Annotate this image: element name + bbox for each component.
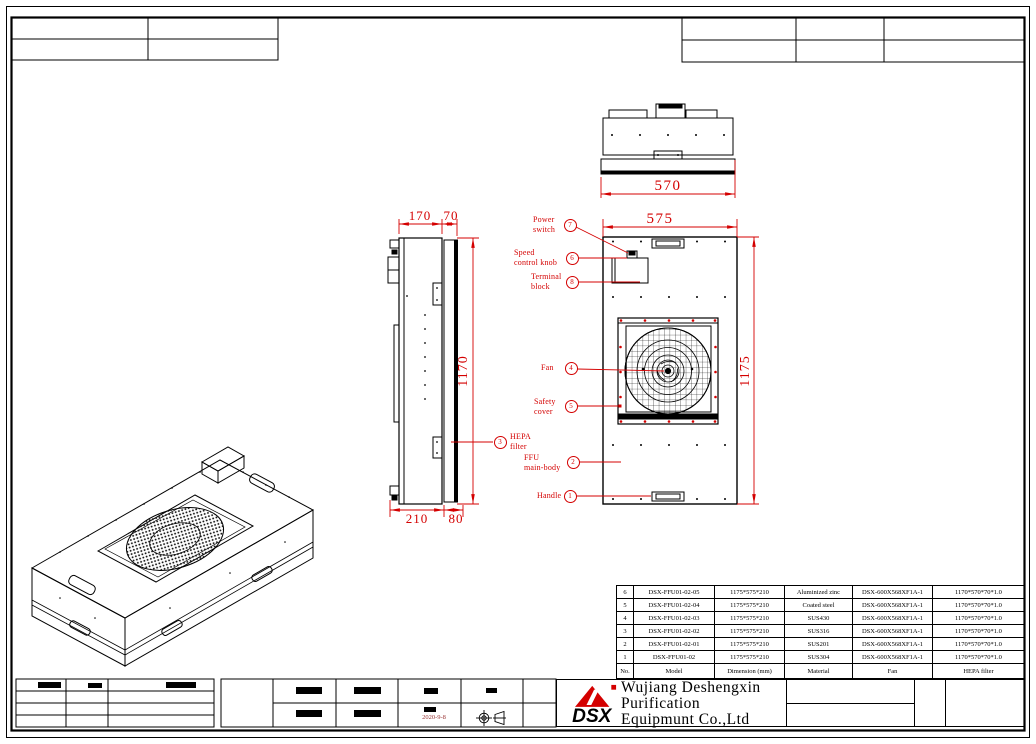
top-view xyxy=(601,104,735,174)
dim-front-height: 1175 xyxy=(738,355,753,386)
dim-top-width: 570 xyxy=(655,178,682,194)
part-no: 2 xyxy=(617,638,634,651)
part-dimension: 1175*575*210 xyxy=(715,599,785,612)
callout-handle-balloon: 1 xyxy=(564,490,577,503)
callout-power-switch-balloon: 7 xyxy=(564,219,577,232)
part-material: SUS430 xyxy=(785,612,853,625)
title-block-divider xyxy=(786,703,914,704)
part-material: SUS304 xyxy=(785,651,853,664)
part-no: 1 xyxy=(617,651,634,664)
part-model: DSX-FFU01-02-02 xyxy=(634,625,715,638)
header-hepa: HEPA filter xyxy=(933,664,1024,679)
projection-symbol xyxy=(476,710,506,726)
revision-table-right xyxy=(682,18,1025,62)
callout-fan-label: Fan xyxy=(541,363,554,373)
side-view xyxy=(388,238,458,504)
part-material: SUS316 xyxy=(785,625,853,638)
dim-filter-height: 1170 xyxy=(456,355,471,386)
screw-dots-top-view xyxy=(611,134,725,156)
part-hepa: 1170*570*70*1.0 xyxy=(933,651,1024,664)
part-no: 6 xyxy=(617,586,634,599)
part-fan: DSX-600X568XF1A-1 xyxy=(853,586,933,599)
header-no: No. xyxy=(617,664,634,679)
callout-handle-label: Handle xyxy=(537,491,561,501)
dsx-logo: DSX xyxy=(571,683,623,725)
title-block: DSX Wujiang Deshengxin Purification Equi… xyxy=(556,679,1025,727)
callout-speed-control-label: Speed control knob xyxy=(514,248,557,267)
part-model: DSX-FFU01-02-01 xyxy=(634,638,715,651)
part-fan: DSX-600X568XF1A-1 xyxy=(853,599,933,612)
header-model: Model xyxy=(634,664,715,679)
company-name: Wujiang Deshengxin Purification Equipmun… xyxy=(621,680,761,727)
dim-side-depth-b: 70 xyxy=(444,208,459,223)
isometric-view xyxy=(32,447,313,666)
callout-safety-cover-label: Safety cover xyxy=(534,397,556,416)
part-hepa: 1170*570*70*1.0 xyxy=(933,612,1024,625)
revision-table-left xyxy=(12,18,278,60)
part-dimension: 1175*575*210 xyxy=(715,612,785,625)
part-material: SUS201 xyxy=(785,638,853,651)
part-dimension: 1175*575*210 xyxy=(715,638,785,651)
callout-power-switch-label: Power switch xyxy=(533,215,555,234)
part-fan: DSX-600X568XF1A-1 xyxy=(853,651,933,664)
part-dimension: 1175*575*210 xyxy=(715,651,785,664)
part-material: Coated steel xyxy=(785,599,853,612)
header-fan: Fan xyxy=(853,664,933,679)
callout-terminal-block-label: Terminal block xyxy=(531,272,561,291)
callout-fan-balloon: 4 xyxy=(565,362,578,375)
part-hepa: 1170*570*70*1.0 xyxy=(933,625,1024,638)
part-material: Aluminized zinc xyxy=(785,586,853,599)
dim-side-bottom-a: 210 xyxy=(406,511,429,526)
part-fan: DSX-600X568XF1A-1 xyxy=(853,625,933,638)
title-block-divider xyxy=(945,680,946,726)
title-block-divider xyxy=(914,680,915,726)
part-dimension: 1175*575*210 xyxy=(715,586,785,599)
part-no: 3 xyxy=(617,625,634,638)
part-model: DSX-FFU01-02-05 xyxy=(634,586,715,599)
callout-safety-cover-balloon: 5 xyxy=(565,400,578,413)
callout-ffu-main-body-label: FFU main-body xyxy=(524,453,560,472)
screw-dots-side-view xyxy=(406,287,438,454)
part-hepa: 1170*570*70*1.0 xyxy=(933,638,1024,651)
part-model: DSX-FFU01-02 xyxy=(634,651,715,664)
callout-terminal-block-balloon: 8 xyxy=(566,276,579,289)
part-model: DSX-FFU01-02-03 xyxy=(634,612,715,625)
part-fan: DSX-600X568XF1A-1 xyxy=(853,612,933,625)
part-hepa: 1170*570*70*1.0 xyxy=(933,599,1024,612)
part-fan: DSX-600X568XF1A-1 xyxy=(853,638,933,651)
dsx-logo-text: DSX xyxy=(572,706,613,725)
header-dimension: Dimension (mm) xyxy=(715,664,785,679)
callout-hepa-filter-label: HEPA filter xyxy=(510,432,531,451)
part-model: DSX-FFU01-02-04 xyxy=(634,599,715,612)
parts-table: 6 DSX-FFU01-02-05 1175*575*210 Aluminize… xyxy=(616,585,1025,679)
drawing-date: 2020-9-8 xyxy=(416,714,452,721)
part-hepa: 1170*570*70*1.0 xyxy=(933,586,1024,599)
part-no: 4 xyxy=(617,612,634,625)
callout-hepa-filter-balloon: 3 xyxy=(494,436,507,449)
callout-ffu-main-body-balloon: 2 xyxy=(567,456,580,469)
callout-speed-control-balloon: 6 xyxy=(566,252,579,265)
header-material: Material xyxy=(785,664,853,679)
engineering-drawing-sheet: 570 575 1175 170 70 210 80 1170 xyxy=(0,0,1036,744)
part-dimension: 1175*575*210 xyxy=(715,625,785,638)
part-no: 5 xyxy=(617,599,634,612)
dim-front-width: 575 xyxy=(647,211,674,227)
dim-side-bottom-b: 80 xyxy=(449,511,464,526)
dim-side-depth-a: 170 xyxy=(409,208,432,223)
redacted-text-bars xyxy=(38,682,497,717)
